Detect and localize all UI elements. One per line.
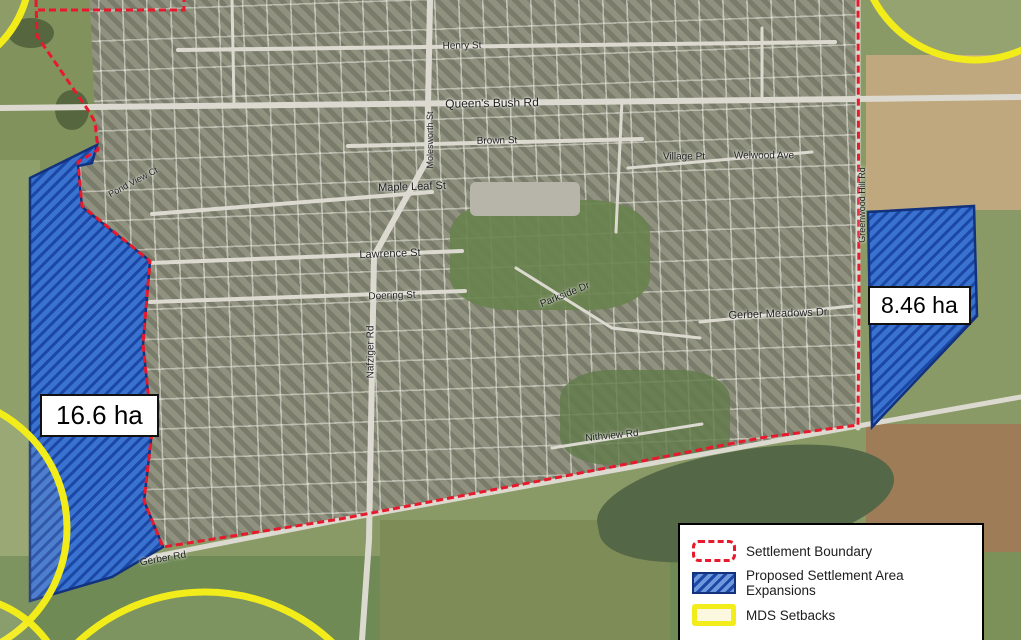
road-henry xyxy=(178,42,835,50)
legend-item-settlement-boundary: Settlement Boundary xyxy=(692,540,970,562)
street-label: Lawrence St xyxy=(359,247,421,261)
area-label-east: 8.46 ha xyxy=(868,286,971,325)
legend-label: Settlement Boundary xyxy=(746,544,872,559)
settlement-boundary xyxy=(36,0,859,547)
road-doering xyxy=(150,291,465,302)
settlement-boundary-path xyxy=(36,0,859,547)
mds-setback-circle xyxy=(0,0,30,75)
mds-setback-swatch xyxy=(692,604,736,626)
area-label-west: 16.6 ha xyxy=(40,394,159,437)
street-label: Henry St xyxy=(442,40,481,52)
road-minor xyxy=(232,0,234,102)
aerial-settlement-map: Henry StQueen's Bush RdBrown StMaple Lea… xyxy=(0,0,1021,640)
legend-label: MDS Setbacks xyxy=(746,608,835,623)
mds-setback-circle xyxy=(19,592,391,640)
street-label: Nafziger Rd xyxy=(366,326,377,379)
street-label: Doering St xyxy=(368,290,416,303)
street-label: Village Pt xyxy=(663,152,705,163)
street-label: Brown St xyxy=(477,135,518,147)
legend-label: Proposed Settlement Area Expansions xyxy=(746,568,970,598)
road-maple-leaf xyxy=(152,192,432,214)
street-label: Queen's Bush Rd xyxy=(445,95,539,111)
settlement-boundary-notch xyxy=(38,0,184,10)
legend-item-proposed-expansions: Proposed Settlement Area Expansions xyxy=(692,568,970,598)
mds-setback-circle xyxy=(860,0,1021,60)
road-minor xyxy=(616,100,622,232)
legend-item-mds-setbacks: MDS Setbacks xyxy=(692,604,970,626)
street-label: Welwood Ave xyxy=(734,151,794,162)
settlement-boundary-swatch xyxy=(692,540,736,562)
road-nafziger xyxy=(362,0,430,640)
map-legend: Settlement Boundary Proposed Settlement … xyxy=(678,523,984,640)
street-label: Molesworth St xyxy=(425,111,435,168)
street-label: Maple Leaf St xyxy=(378,180,446,194)
expansion-hatch-swatch xyxy=(692,572,736,594)
street-label: Greenwood Hill Rd xyxy=(857,167,867,243)
